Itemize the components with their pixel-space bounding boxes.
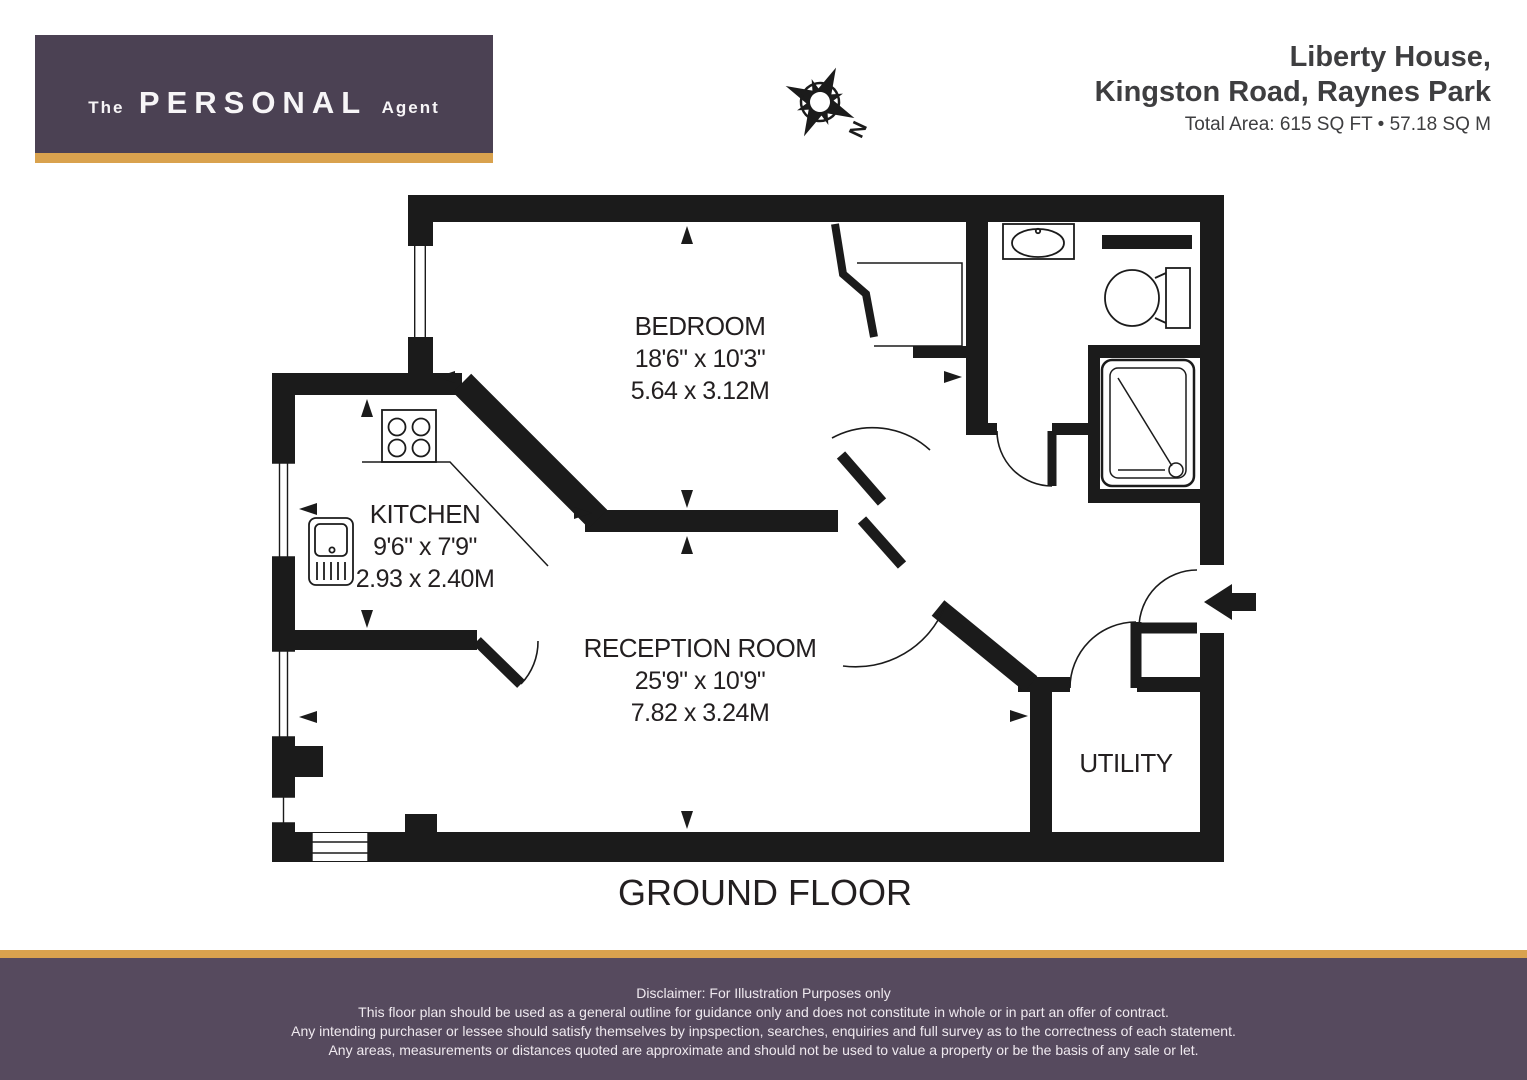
kitchen-door xyxy=(477,641,538,684)
reception-arrow-up xyxy=(681,536,693,554)
bedroom-arrow-up xyxy=(681,226,693,244)
bedroom-arrow-right xyxy=(944,371,962,383)
basin-icon xyxy=(1003,224,1074,259)
kitchen-imperial: 9'6" x 7'9" xyxy=(330,531,520,563)
reception-imperial: 25'9" x 10'9" xyxy=(560,665,840,697)
disclaimer-line-4: Any areas, measurements or distances quo… xyxy=(0,1041,1527,1060)
toilet-icon xyxy=(1105,268,1190,328)
room-label-kitchen: KITCHEN 9'6" x 7'9" 2.93 x 2.40M xyxy=(330,498,520,595)
kitchen-arrow-down xyxy=(361,610,373,628)
floor-title: GROUND FLOOR xyxy=(570,872,960,914)
shower-icon xyxy=(1102,360,1194,486)
entry-arrow-icon xyxy=(1204,584,1256,620)
closet-doors xyxy=(835,224,962,346)
disclaimer-line-3: Any intending purchaser or lessee should… xyxy=(0,1022,1527,1041)
reception-window-left-small xyxy=(272,797,295,823)
reception-arrow-left xyxy=(299,711,317,723)
bedroom-imperial: 18'6" x 10'3" xyxy=(560,343,840,375)
bedroom-name: BEDROOM xyxy=(560,310,840,343)
bedroom-arrow-down xyxy=(681,490,693,508)
footer-gold-stripe xyxy=(0,950,1527,958)
room-label-reception: RECEPTION ROOM 25'9" x 10'9" 7.82 x 3.24… xyxy=(560,632,840,729)
reception-name: RECEPTION ROOM xyxy=(560,632,840,665)
kitchen-window xyxy=(272,463,295,557)
kitchen-metric: 2.93 x 2.40M xyxy=(330,563,520,595)
utility-name: UTILITY xyxy=(1056,747,1196,780)
reception-metric: 7.82 x 3.24M xyxy=(560,697,840,729)
reception-window-bottom xyxy=(312,833,368,861)
reception-window-left xyxy=(272,651,295,737)
disclaimer-line-1: Disclaimer: For Illustration Purposes on… xyxy=(0,984,1527,1003)
entrance-door xyxy=(1139,570,1197,628)
reception-door xyxy=(843,520,945,667)
disclaimer: Disclaimer: For Illustration Purposes on… xyxy=(0,984,1527,1060)
bedroom-door xyxy=(832,428,930,502)
kitchen-name: KITCHEN xyxy=(330,498,520,531)
compass-north-label: N xyxy=(844,117,871,140)
bathroom-door xyxy=(997,431,1052,486)
floorplan-page: The PERSONAL Agent Liberty House, Kingst… xyxy=(0,0,1527,1080)
reception-arrow-right xyxy=(1010,710,1028,722)
disclaimer-line-2: This floor plan should be used as a gene… xyxy=(0,1003,1527,1022)
reception-arrow-down xyxy=(681,811,693,829)
kitchen-arrow-up xyxy=(361,399,373,417)
floorplan-drawing: N xyxy=(0,0,1527,1080)
room-label-bedroom: BEDROOM 18'6" x 10'3" 5.64 x 3.12M xyxy=(560,310,840,407)
bedroom-window xyxy=(408,246,433,337)
room-label-utility: UTILITY xyxy=(1056,747,1196,780)
hob-icon xyxy=(382,410,436,462)
bedroom-metric: 5.64 x 3.12M xyxy=(560,375,840,407)
compass-rose-icon: N xyxy=(772,54,871,150)
kitchen-arrow-left xyxy=(299,503,317,515)
utility-door xyxy=(1070,622,1136,688)
